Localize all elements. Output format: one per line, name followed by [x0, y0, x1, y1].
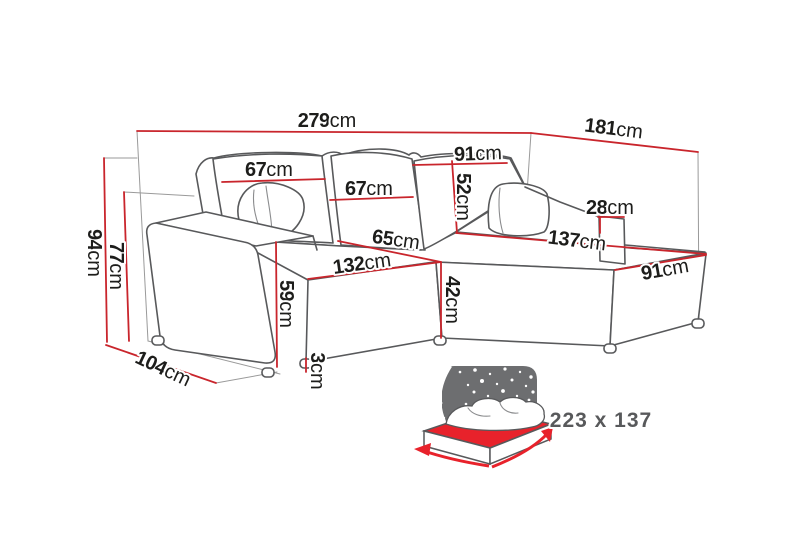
label-side-depth: 104cm [132, 347, 194, 392]
label-left-armrest-height: 59cm [275, 280, 297, 328]
label-total-width: 279cm [298, 110, 357, 132]
label-corner-backrest-width: 91cm [454, 142, 503, 166]
diagram-canvas: 279cm 181cm 94cm 77cm 104cm 67cm 67cm 91… [0, 0, 800, 533]
label-right-armrest-height: 28cm [586, 197, 634, 219]
label-leg-height: 3cm [306, 352, 328, 389]
label-total-height: 94cm [83, 229, 105, 277]
sleeping-function-icon: 223 x 137 [414, 365, 652, 467]
label-backrest-above-seat: 52cm [452, 173, 474, 221]
sleeping-area-label: 223 x 137 [550, 409, 652, 432]
label-backrest-height: 77cm [105, 242, 127, 290]
label-back-cushion-left: 67cm [245, 159, 293, 181]
label-back-cushion-middle: 67cm [345, 178, 393, 200]
sofa-dimension-diagram: 279cm 181cm 94cm 77cm 104cm 67cm 67cm 91… [0, 0, 800, 533]
pillow-chaise [488, 183, 549, 236]
label-seat-height: 42cm [441, 276, 463, 324]
